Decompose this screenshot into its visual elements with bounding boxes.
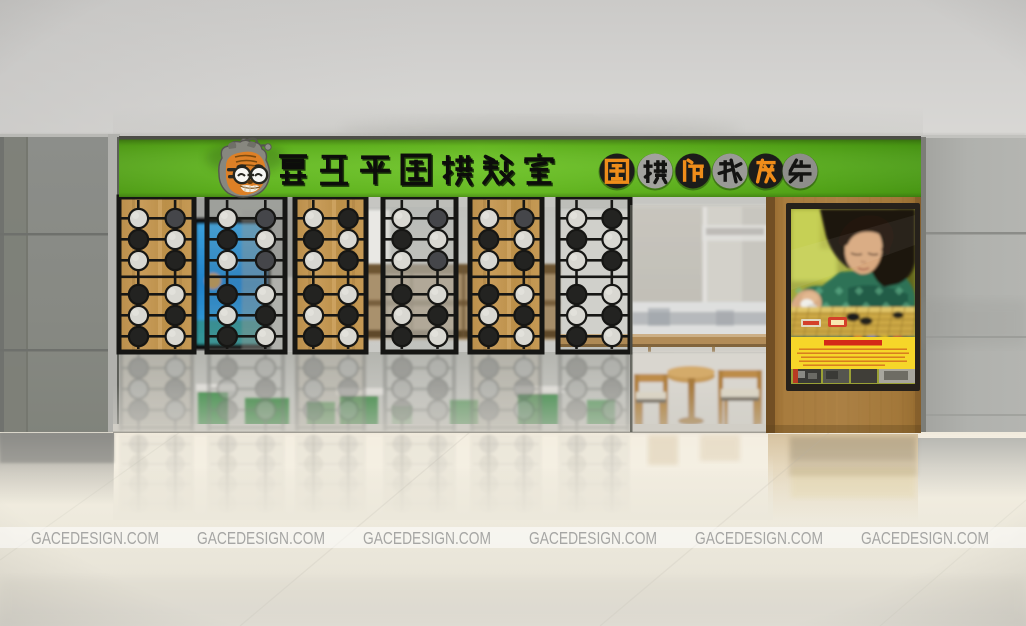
svg-text:GACEDESIGN.COM: GACEDESIGN.COM xyxy=(363,528,491,548)
svg-text:GACEDESIGN.COM: GACEDESIGN.COM xyxy=(529,528,657,548)
svg-text:GACEDESIGN.COM: GACEDESIGN.COM xyxy=(695,528,823,548)
svg-text:GACEDESIGN.COM: GACEDESIGN.COM xyxy=(197,528,325,548)
svg-text:GACEDESIGN.COM: GACEDESIGN.COM xyxy=(31,528,159,548)
svg-text:GACEDESIGN.COM: GACEDESIGN.COM xyxy=(861,528,989,548)
